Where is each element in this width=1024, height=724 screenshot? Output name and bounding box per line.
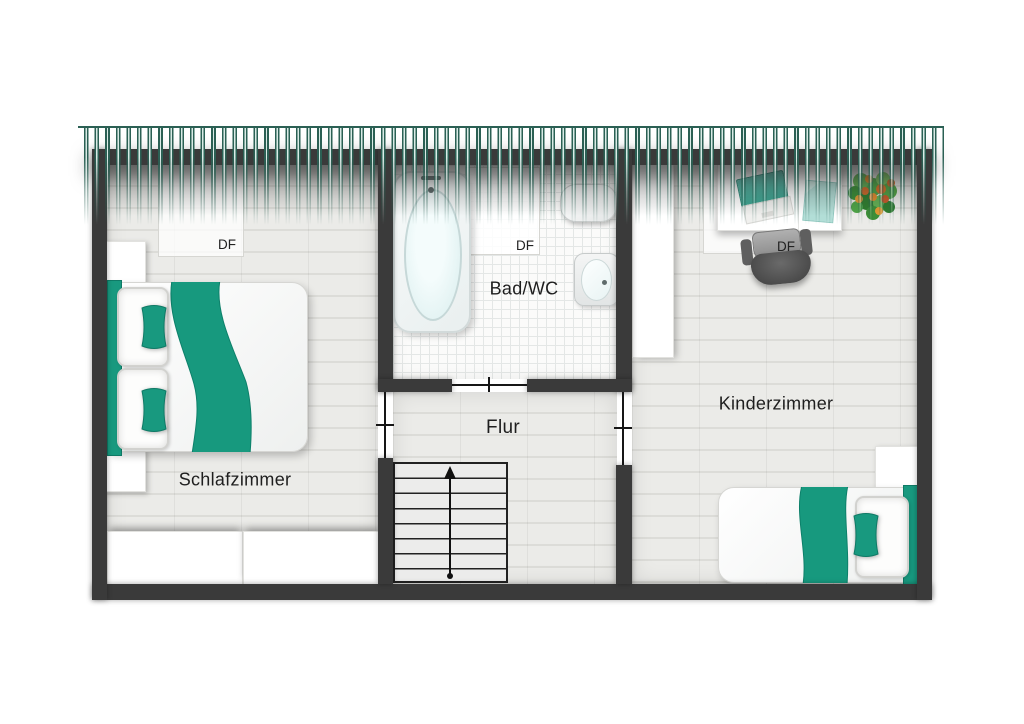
cushion: [139, 303, 169, 351]
cushion: [139, 386, 169, 434]
wall-kinderzimmer-lower: [616, 465, 632, 584]
cushion: [851, 511, 881, 559]
room-label-flur: Flur: [486, 417, 520, 439]
door-schlafzimmer-tick: [376, 424, 394, 426]
room-label-kinderzimmer: Kinderzimmer: [719, 394, 834, 415]
floor-plan: DF DF DF: [0, 0, 1024, 724]
wardrobe: [632, 163, 674, 358]
flush-button-icon: [602, 280, 607, 285]
wall-schlafzimmer-upper: [378, 149, 393, 392]
faucet-icon: [421, 176, 441, 180]
sink: [560, 184, 617, 222]
staircase: [393, 462, 508, 583]
bathtub: [393, 171, 471, 333]
single-bed: [718, 487, 917, 583]
door-bad-tick: [488, 377, 490, 392]
wardrobe: [243, 531, 380, 586]
wall-left: [92, 149, 107, 600]
roof-window-label: DF: [777, 239, 795, 254]
wall-bad-bottom-left: [378, 379, 452, 392]
double-bed: [108, 282, 308, 452]
nightstand: [875, 446, 918, 489]
room-label-bad: Bad/WC: [490, 279, 559, 300]
chair-seat: [750, 249, 813, 287]
wall-top: [92, 149, 932, 165]
toilet-bowl: [581, 259, 612, 301]
roof-window-label: DF: [218, 237, 236, 252]
roof-window-label: DF: [516, 238, 534, 253]
wardrobe: [107, 531, 243, 586]
wall-bottom: [92, 584, 932, 600]
nightstand: [104, 241, 146, 284]
door-kinderzimmer-tick: [614, 427, 632, 429]
potted-plant: [845, 167, 903, 223]
office-chair: [739, 224, 818, 287]
wall-bad-bottom-right: [527, 379, 632, 392]
wall-schlafzimmer-lower: [378, 458, 393, 584]
toilet: [574, 253, 619, 306]
bathtub-basin: [404, 189, 462, 321]
drain-icon: [428, 187, 434, 193]
desk-seam: [798, 165, 799, 230]
room-label-schlafzimmer: Schlafzimmer: [179, 470, 292, 491]
paper-folder: [802, 180, 836, 224]
wall-right: [917, 149, 932, 600]
wall-kinderzimmer-upper: [616, 149, 632, 392]
stairs-up-arrow-icon: [395, 464, 506, 581]
